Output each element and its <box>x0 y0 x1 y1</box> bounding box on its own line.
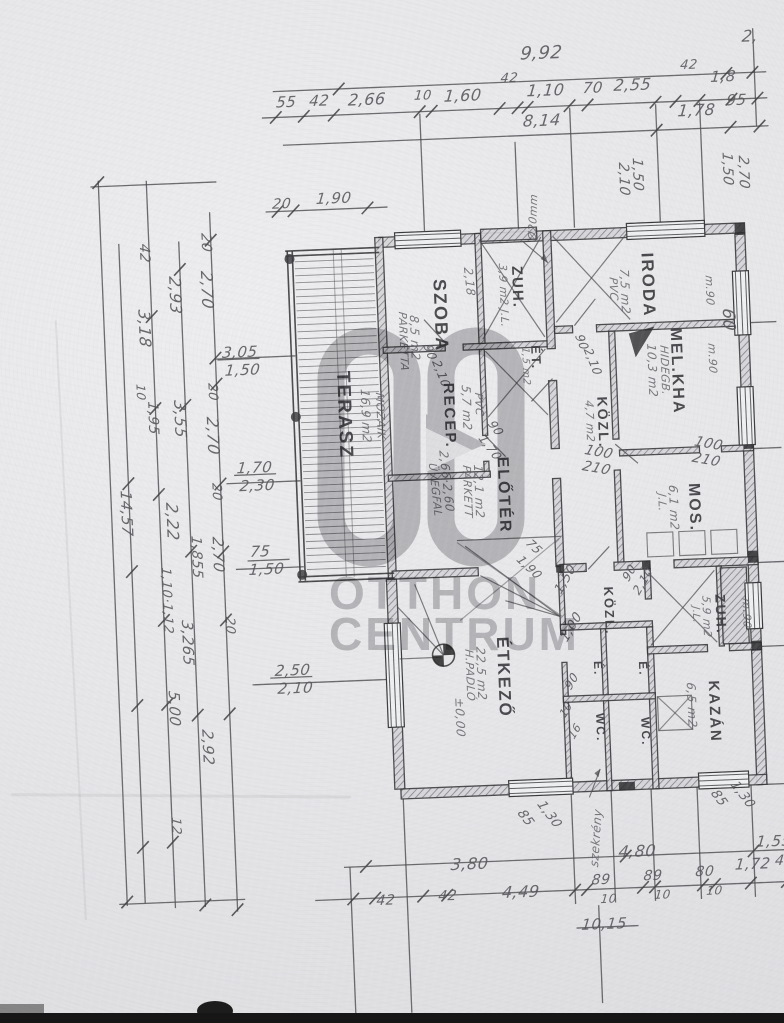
dim-strikethrough: 10,15 <box>581 916 628 933</box>
dim-label: 2,93 <box>166 276 184 315</box>
dim-label: 2,92 <box>199 729 215 766</box>
dim-label: PVC <box>607 277 619 301</box>
dim-label: 1,50 <box>224 362 261 378</box>
dim-label: 2,66 <box>347 91 386 109</box>
dim-label: 20 <box>272 197 292 212</box>
dim-label: PARKETTA <box>397 311 410 371</box>
dim-label: 75 <box>249 544 271 560</box>
room-szoba: SZOBA <box>430 279 451 353</box>
dim-label: 10 <box>134 384 147 401</box>
room-eloter: ELŐTÉR <box>494 456 513 533</box>
dim-label: 1,855 <box>189 535 205 579</box>
dim-label: 2,10 <box>616 162 631 197</box>
dim-label: PVC <box>473 392 485 416</box>
dim-label: 4,80 <box>618 843 657 861</box>
dim-label: 2,18 <box>462 267 477 296</box>
dim-label: 1,55 <box>755 833 784 849</box>
dim-label: 10 <box>558 700 574 720</box>
dim-label: 1,50 <box>248 561 285 577</box>
dim-label: 1,50 <box>553 562 579 597</box>
dim-label: 1,50 <box>720 152 735 187</box>
room-zuh-2: ZUH. <box>713 594 729 635</box>
dim-label: 10 <box>414 89 433 103</box>
dim-label: 1,5 m2 <box>519 346 531 385</box>
dim-label: 2,70 <box>210 536 226 573</box>
dim-label: 2,70 <box>204 416 222 455</box>
dim-label: 210 <box>580 459 612 477</box>
dim-label: 2,70 <box>198 270 216 309</box>
dim-label: PARKETT <box>461 465 474 518</box>
room-e-1: É. <box>592 661 605 677</box>
room-mos: MOS. <box>685 483 703 532</box>
dim-label: 1,50 <box>630 157 645 192</box>
scan-artifact-bar <box>0 1013 784 1023</box>
dim-label: 8,14 <box>522 112 561 130</box>
dim-label: 16 <box>567 721 583 741</box>
dim-label: 4,7 m2 <box>583 400 596 443</box>
dim-label: 55 <box>275 95 297 111</box>
dim-label: 3,80 <box>450 856 489 874</box>
room-wc-2: WC. <box>639 717 652 747</box>
dim-label: 42 <box>679 58 698 72</box>
dim-label: 10 <box>600 892 617 905</box>
dim-label: 85 <box>514 808 536 828</box>
dim-label: 70 <box>582 80 604 96</box>
dim-label: 5,9 m2 <box>700 595 713 638</box>
dim-label: 3,18 <box>135 309 153 348</box>
dim-label: 1,70 <box>236 460 273 476</box>
dim-label: 1,60 <box>443 87 482 105</box>
dim-label: 10 <box>706 884 723 897</box>
dim-label: 42 <box>774 853 784 868</box>
dim-label: m.90 <box>740 598 752 629</box>
dim-label: 16,9 m2 <box>359 389 373 444</box>
room-kozl-1: KÖZL. <box>595 396 611 449</box>
dim-label: 42 <box>376 893 396 908</box>
dim-label: 42 <box>500 72 519 86</box>
dim-label: 5,00 <box>166 690 182 727</box>
dim-label: 6,1 m2 <box>667 484 681 530</box>
dim-label: 42 <box>308 93 330 109</box>
room-terasz: TERASZ <box>333 371 356 460</box>
dim-label: 80 <box>695 864 715 879</box>
leader-note: Ø20mm <box>527 193 539 241</box>
dim-label: 75 <box>523 538 544 557</box>
dim-top: 2, <box>741 28 759 45</box>
dim-label: 85 <box>708 788 730 808</box>
dim-label: 2,70 <box>736 155 751 190</box>
dim-label: 95 <box>726 93 748 109</box>
dim-label: 1,90 <box>315 190 352 206</box>
dim-label: 42 <box>137 243 152 263</box>
dim-label: 2,30 <box>239 478 276 494</box>
dim-label: 20 <box>198 233 213 253</box>
dim-label: 42 <box>438 889 458 904</box>
dim-label: 1,78 <box>677 102 716 120</box>
dim-label: 89 <box>591 873 611 888</box>
dim-label: 4,49 <box>501 883 540 901</box>
dim-label: J.L. <box>690 606 701 624</box>
dim-label: 1,30 <box>727 779 757 810</box>
dim-label: 20 <box>223 616 237 635</box>
dim-label: HIDEGB. <box>658 345 671 396</box>
dim-label: 3,265 <box>179 620 196 667</box>
dim-label: 1,95 <box>145 401 160 436</box>
dim-label: 1,8 <box>710 69 737 85</box>
room-zuh-1: ZUH. <box>509 266 526 310</box>
room-iroda: IRODA <box>639 252 659 317</box>
dim-label: J.L. <box>656 493 668 512</box>
dim-label: 2,10 <box>277 680 314 696</box>
dim-label: H.PADLÓ <box>463 649 476 702</box>
dim-label: 20 <box>205 383 219 402</box>
dim-label: 6,5 m2 <box>685 682 699 728</box>
dim-label: 1,72 <box>734 856 771 872</box>
room-wc-1: WC. <box>594 713 607 743</box>
dim-overall-top: 9,92 <box>519 44 563 64</box>
scanned-floorplan-page: 9,922,55422,66101,60421,10702,55421,88,1… <box>0 0 784 1023</box>
dim-label: 10 <box>654 888 671 901</box>
dim-label: 3,55 <box>171 400 189 439</box>
dim-label: 7,5 m2 <box>618 268 632 314</box>
elevation-value: ±0,00 <box>453 697 467 737</box>
annotation-layer: 9,922,55422,66101,60421,10702,55421,88,1… <box>0 0 784 1023</box>
dim-label: 1,10 <box>526 82 565 100</box>
note-szekreny: szekrény <box>588 808 604 868</box>
room-et: ÉT. <box>529 345 543 370</box>
dim-label: 210 <box>690 451 722 469</box>
dim-label: 3,05 <box>221 344 258 360</box>
room-kozl-2: KÖZL. <box>602 586 617 635</box>
dim-label: MOZAIK <box>374 392 387 440</box>
dim-label: 60 <box>719 307 737 331</box>
scan-tilt-wrapper: 9,922,55422,66101,60421,10702,55421,88,1… <box>0 0 784 1023</box>
dim-label: 1,10·1,12 <box>159 567 175 635</box>
dim-label: 89 <box>643 869 663 884</box>
dim-label: 90 <box>563 670 581 692</box>
dim-label: 20 <box>209 483 223 502</box>
room-recep: RECEP. <box>441 382 459 448</box>
dim-label: 14,57 <box>118 490 135 537</box>
room-etkezo: ÉTKEZŐ <box>494 636 514 718</box>
dim-label: 2,10 <box>582 347 605 377</box>
dim-label: m.90 <box>706 343 718 374</box>
dim-label: 1,30 <box>534 799 564 830</box>
dim-label: 2,22 <box>163 502 181 541</box>
dim-label: m.90 <box>703 275 715 306</box>
room-kazan: KAZÁN <box>706 680 723 743</box>
dim-label: 3,9 m2 J.L. <box>497 263 511 328</box>
room-e-2: É. <box>637 661 650 677</box>
dim-label: 12 <box>169 817 183 836</box>
dim-label: 1,00 <box>559 610 585 645</box>
dim-label: 2,50 <box>274 663 311 679</box>
dim-label: 1,90 <box>514 554 544 581</box>
dim-label: 2,55 <box>613 76 652 94</box>
